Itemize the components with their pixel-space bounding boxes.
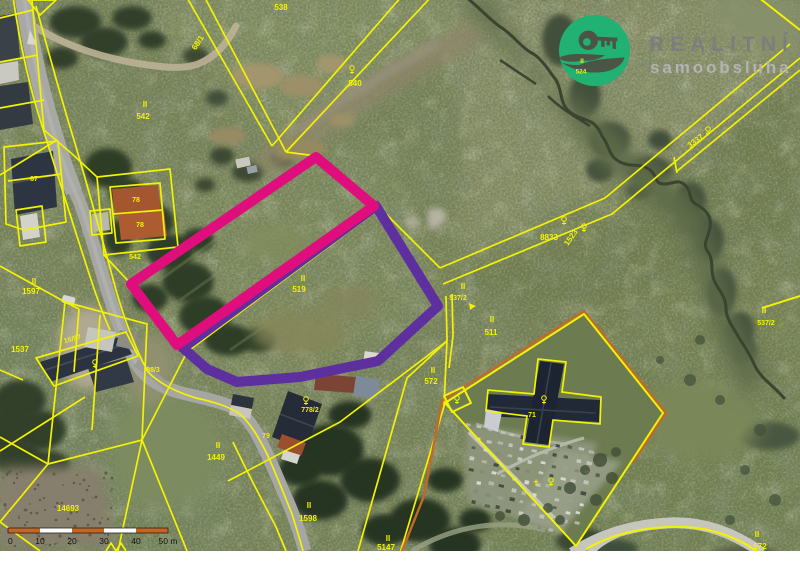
svg-text:88/3: 88/3 xyxy=(146,367,160,374)
svg-text:537/2: 537/2 xyxy=(449,295,467,302)
svg-text:II: II xyxy=(762,306,766,315)
svg-text:5147: 5147 xyxy=(377,543,395,552)
svg-text:572: 572 xyxy=(424,377,438,386)
svg-text:14693: 14693 xyxy=(57,504,80,513)
svg-text:II: II xyxy=(301,274,305,283)
svg-text:87: 87 xyxy=(30,176,38,183)
svg-text:78: 78 xyxy=(132,197,140,204)
svg-text:1449: 1449 xyxy=(207,453,225,462)
svg-text:II: II xyxy=(461,282,465,291)
svg-text:20: 20 xyxy=(67,536,77,546)
svg-text:1537: 1537 xyxy=(11,345,29,354)
svg-text:50 m: 50 m xyxy=(159,536,178,546)
svg-text:78: 78 xyxy=(136,222,144,229)
svg-text:71: 71 xyxy=(528,412,536,419)
svg-text:II: II xyxy=(32,277,36,286)
svg-text:10: 10 xyxy=(35,536,45,546)
svg-text:✝: ✝ xyxy=(532,478,540,488)
svg-text:519: 519 xyxy=(292,285,306,294)
svg-text:572: 572 xyxy=(753,542,767,551)
svg-text:30: 30 xyxy=(99,536,109,546)
svg-text:II: II xyxy=(580,58,584,65)
svg-text:II: II xyxy=(431,366,435,375)
svg-text:1597: 1597 xyxy=(22,287,40,296)
svg-text:II: II xyxy=(386,534,390,543)
svg-text:samoobsluha: samoobsluha xyxy=(650,58,791,77)
svg-text:511: 511 xyxy=(485,328,498,337)
svg-text:537/2: 537/2 xyxy=(757,320,775,327)
svg-text:79: 79 xyxy=(262,433,270,440)
svg-text:REALITNÍ: REALITNÍ xyxy=(649,33,794,56)
svg-text:II: II xyxy=(143,100,147,109)
svg-text:538: 538 xyxy=(274,3,288,12)
svg-text:1598: 1598 xyxy=(299,514,317,523)
svg-text:II: II xyxy=(307,501,311,510)
svg-text:542: 542 xyxy=(136,112,150,121)
svg-text:542: 542 xyxy=(129,254,141,261)
svg-text:778/2: 778/2 xyxy=(301,407,319,414)
svg-text:II: II xyxy=(216,441,220,450)
svg-text:8833: 8833 xyxy=(540,233,558,242)
svg-text:0: 0 xyxy=(8,536,13,546)
svg-text:II: II xyxy=(490,315,494,324)
svg-text:524: 524 xyxy=(576,69,587,76)
svg-text:540: 540 xyxy=(348,79,362,88)
svg-text:II: II xyxy=(755,530,759,539)
svg-text:40: 40 xyxy=(131,536,141,546)
